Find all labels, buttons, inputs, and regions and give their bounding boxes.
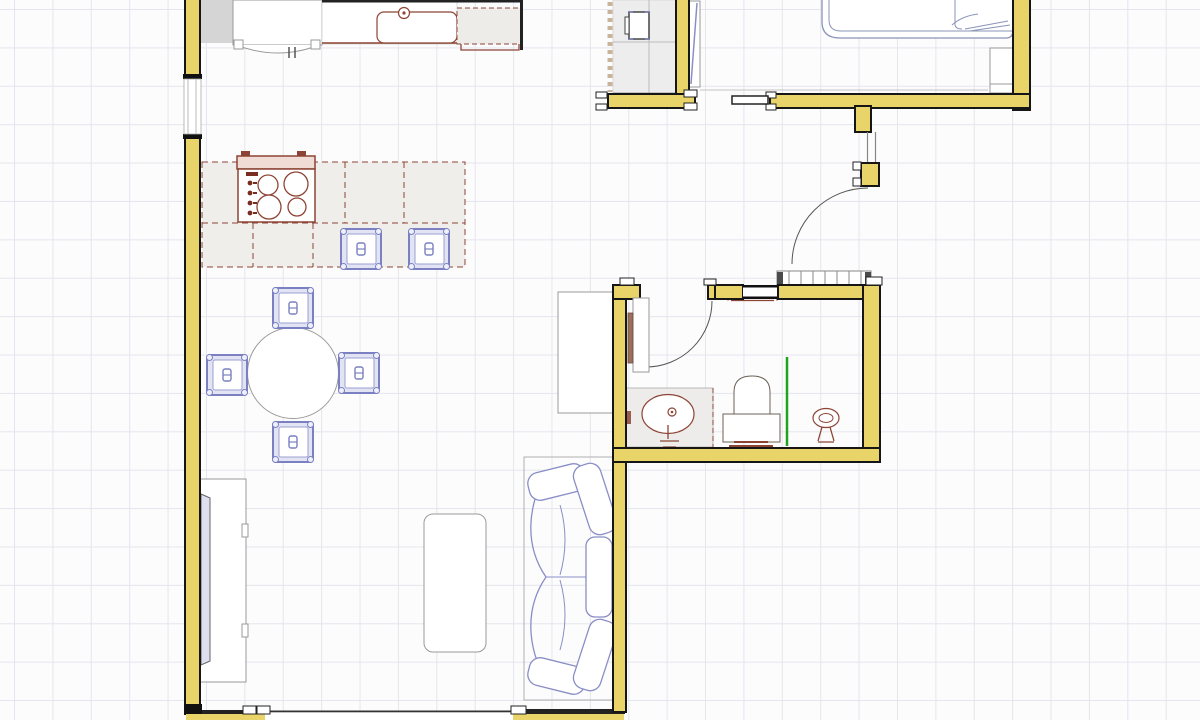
wall-left-lower[interactable] <box>185 138 200 714</box>
wall-bottom[interactable] <box>184 704 625 720</box>
vanity-counter[interactable] <box>622 388 713 447</box>
dishwasher[interactable] <box>457 0 523 50</box>
tv-cabinet[interactable] <box>198 479 248 682</box>
door-bathroom[interactable] <box>628 298 712 372</box>
door-leaf <box>633 298 649 372</box>
wall-bathroom-right[interactable] <box>863 285 880 462</box>
double-bed[interactable] <box>822 0 1013 38</box>
nightstand[interactable] <box>990 48 1013 93</box>
floorplan-canvas[interactable] <box>0 0 1200 720</box>
room-kitchen <box>200 0 523 270</box>
wall-stub[interactable] <box>855 106 871 132</box>
sliding-door-leaf[interactable] <box>732 96 768 104</box>
window-left[interactable] <box>183 74 202 139</box>
radiator[interactable] <box>777 271 871 285</box>
appliance-block[interactable] <box>200 0 233 43</box>
wall-bathroom-top-b[interactable] <box>715 285 743 299</box>
door-handle-bar <box>628 313 633 363</box>
window-bathroom-top[interactable] <box>743 285 778 299</box>
drawer-unit[interactable] <box>625 12 649 39</box>
window-bottom[interactable] <box>243 706 526 720</box>
storage-cabinet[interactable] <box>558 292 615 413</box>
wall-bathroom-top-a[interactable] <box>613 285 640 299</box>
refrigerator[interactable] <box>233 0 322 58</box>
wall-bathroom-bottom[interactable] <box>613 448 880 462</box>
room-bedroom <box>700 0 1013 93</box>
coffee-table[interactable] <box>424 514 486 652</box>
sectional-sofa[interactable] <box>524 457 619 700</box>
kitchen-sink <box>377 12 457 43</box>
room-dining-area <box>207 288 380 463</box>
dining-chair[interactable] <box>273 288 314 329</box>
door-hallway[interactable] <box>792 132 879 264</box>
floorplan-drawing <box>0 0 1200 720</box>
wall-left-upper[interactable] <box>185 0 200 77</box>
wall-corridor-left[interactable] <box>608 94 695 108</box>
mirror-door-leaf[interactable] <box>689 1 700 87</box>
television <box>201 494 210 665</box>
dining-chair[interactable] <box>339 353 380 394</box>
toilet[interactable] <box>723 376 780 446</box>
bar-stool[interactable] <box>409 229 450 270</box>
wall-bathroom-left[interactable] <box>613 285 626 712</box>
dining-chair[interactable] <box>273 422 314 463</box>
gas-cooktop[interactable] <box>237 151 315 222</box>
faucet <box>399 8 410 19</box>
round-dining-table[interactable] <box>248 328 339 419</box>
wall-bathroom-top-c[interactable] <box>778 285 863 299</box>
bar-stool[interactable] <box>341 229 382 270</box>
pedestal-stand[interactable] <box>813 409 839 443</box>
dining-chair[interactable] <box>207 355 248 396</box>
wall-corridor-right[interactable] <box>770 94 1030 108</box>
